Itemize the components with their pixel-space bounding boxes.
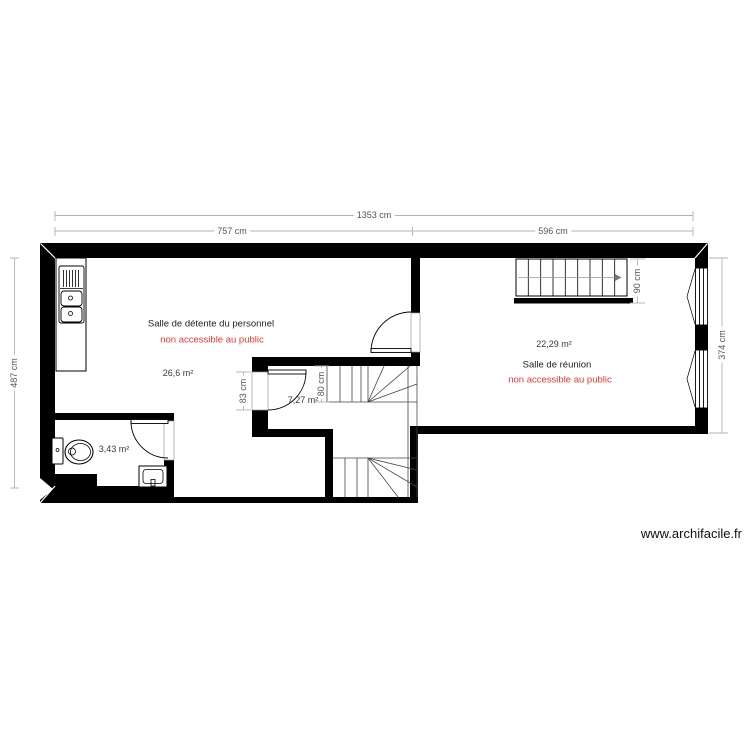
wall-hall-left-lower bbox=[252, 410, 268, 432]
room-name-detente: Salle de détente du personnel bbox=[148, 319, 274, 330]
room-area-hall: 7,27 m² bbox=[288, 395, 319, 405]
wall-top bbox=[40, 243, 708, 258]
room-name-reunion: Salle de réunion bbox=[523, 360, 592, 371]
window-icon-upper bbox=[687, 268, 708, 325]
dimension-reunion-width: 596 cm bbox=[535, 226, 571, 236]
door-leaf bbox=[371, 349, 411, 353]
wall-bottom-mid bbox=[174, 497, 418, 503]
door-leaf bbox=[131, 420, 168, 424]
wall-reunion-bottom bbox=[410, 426, 708, 434]
door-opening bbox=[252, 372, 268, 410]
dimension-reunion-stair: 90 cm bbox=[632, 266, 642, 297]
door-wc bbox=[131, 420, 174, 461]
door-leaf bbox=[268, 370, 306, 374]
wall-hall-left-upper bbox=[252, 366, 268, 372]
floorplan-drawing bbox=[0, 0, 750, 750]
sink-icon bbox=[139, 466, 167, 487]
window-icon-lower bbox=[687, 350, 708, 408]
room-restriction-reunion: non accessible au public bbox=[508, 375, 612, 386]
kitchen-unit-icon bbox=[56, 258, 86, 371]
wall-right-upper bbox=[695, 258, 708, 268]
door-detente-reunion bbox=[371, 312, 420, 353]
wall-detente-reunion-upper bbox=[411, 258, 420, 313]
wall-stair-left bbox=[325, 432, 333, 503]
room-area-reunion: 22,29 m² bbox=[536, 339, 572, 349]
dimension-reunion-height: 374 cm bbox=[717, 327, 727, 363]
dimension-detente-width: 757 cm bbox=[214, 226, 250, 236]
door-arc-icon bbox=[371, 312, 411, 352]
room-area-detente: 26,6 m² bbox=[163, 368, 194, 378]
staircase-hall-icon bbox=[327, 366, 417, 497]
wall-hall-top bbox=[252, 357, 420, 366]
sink-basin-bottom bbox=[61, 307, 82, 322]
watermark: www.archifacile.fr bbox=[641, 526, 742, 541]
wall-hall-bottom bbox=[252, 429, 333, 437]
wall-right-middle bbox=[695, 325, 708, 350]
door-opening bbox=[411, 313, 420, 352]
dimension-hall-door: 83 cm bbox=[238, 376, 248, 407]
toilet-icon bbox=[52, 438, 93, 464]
stair-edge-bar bbox=[514, 298, 633, 304]
wall-bottom-wc bbox=[55, 486, 174, 503]
room-restriction-detente: non accessible au public bbox=[160, 335, 264, 346]
door-arc-icon bbox=[131, 421, 168, 458]
staircase-reunion-icon bbox=[514, 259, 633, 304]
room-area-wc: 3,43 m² bbox=[99, 444, 130, 454]
wall-wc-top bbox=[55, 413, 174, 420]
dimension-left-height: 487 cm bbox=[9, 355, 19, 391]
sink-basin-top bbox=[61, 291, 82, 306]
floorplan-canvas: 1353 cm 757 cm 596 cm 487 cm 374 cm 83 c… bbox=[0, 0, 750, 750]
dimension-overall-width: 1353 cm bbox=[354, 210, 395, 220]
door-opening bbox=[164, 421, 174, 460]
